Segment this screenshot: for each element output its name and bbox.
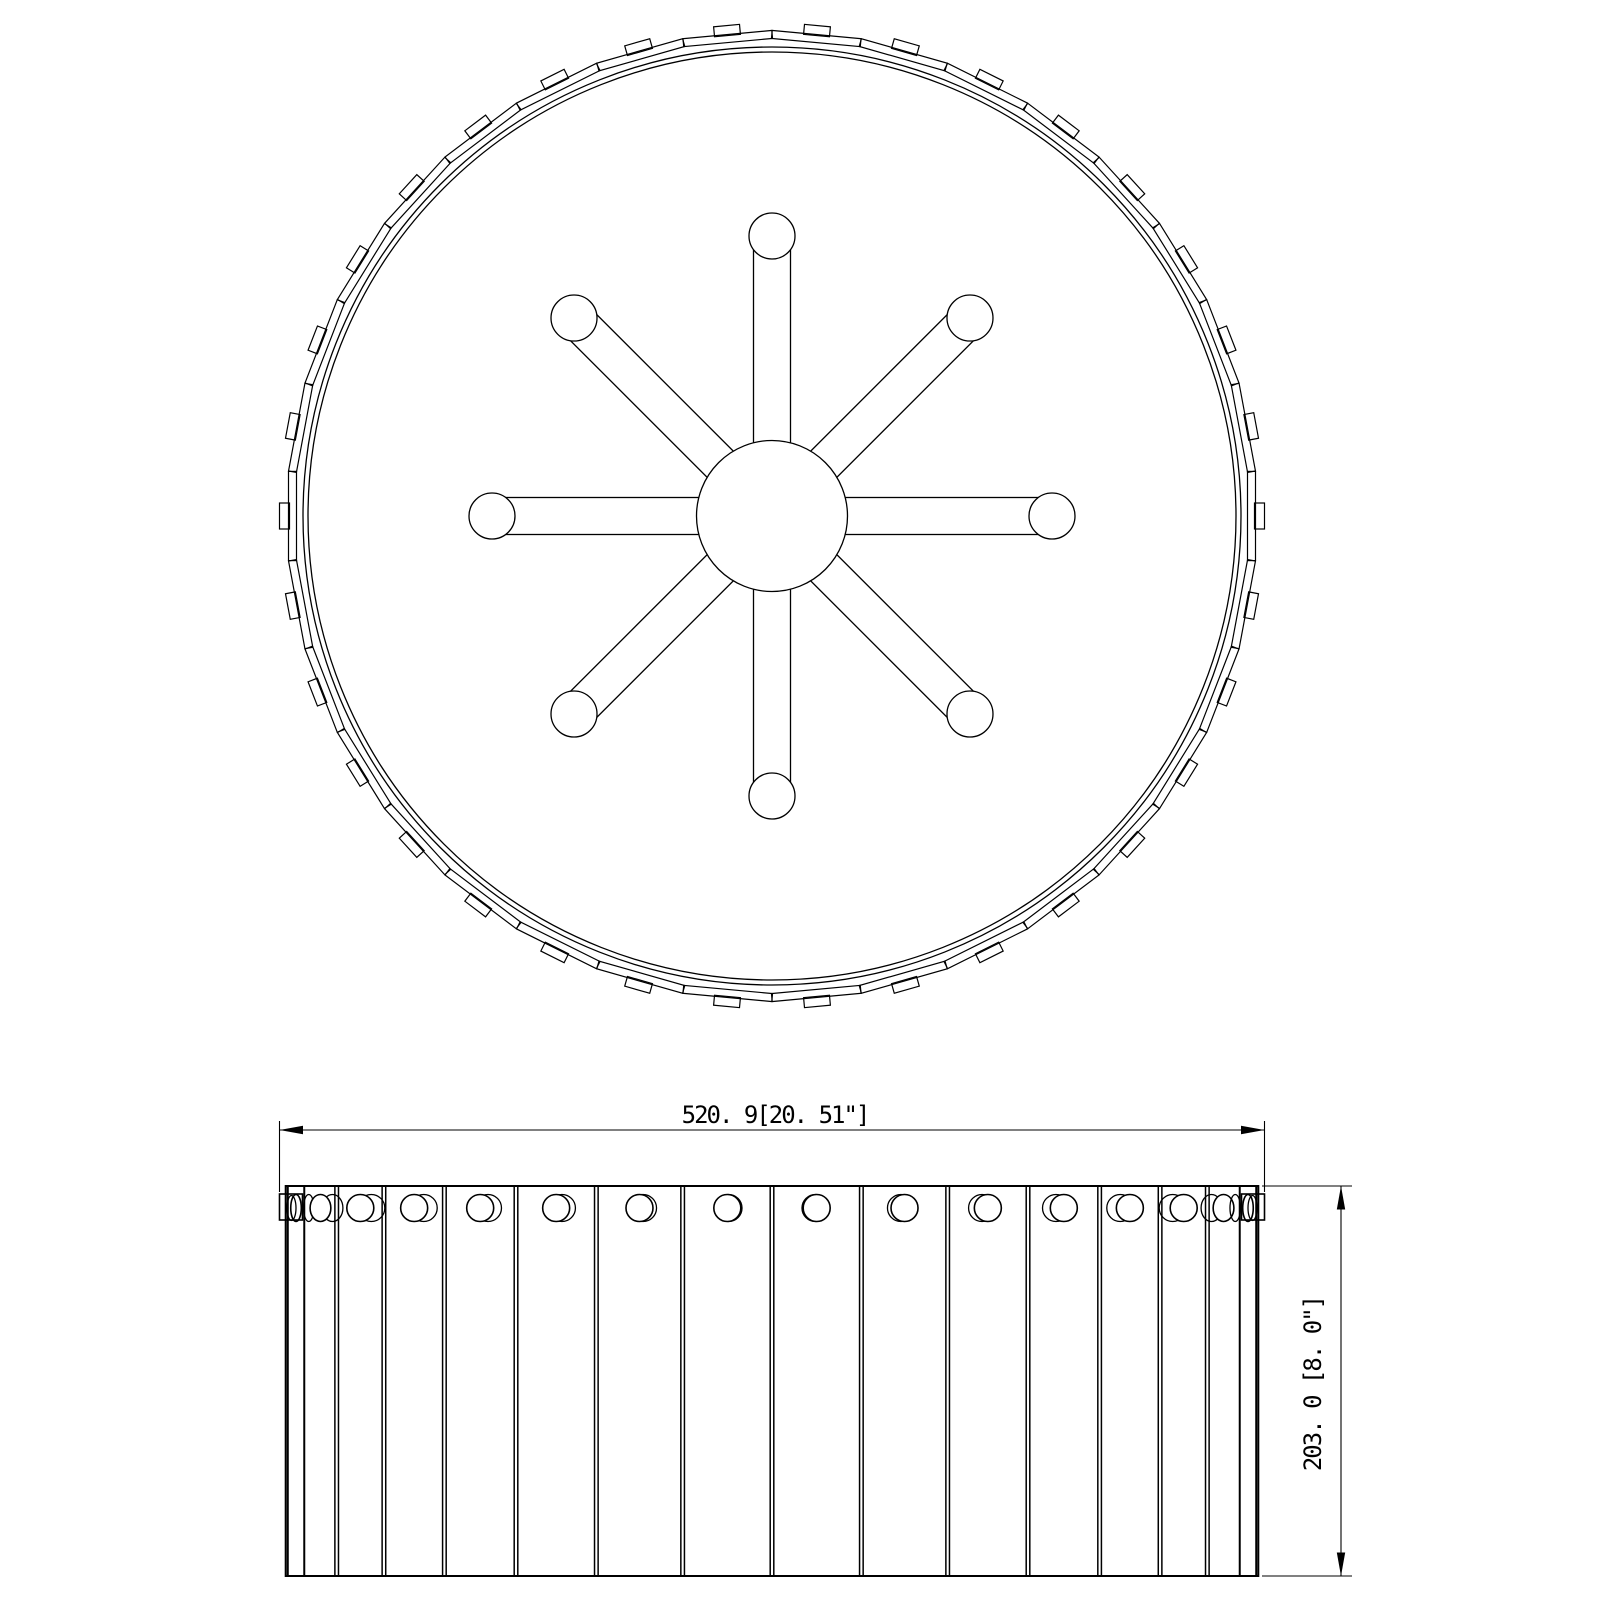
- clip-tab: [285, 413, 300, 440]
- glass-panel: [683, 30, 773, 46]
- panel-group: [297, 297, 345, 386]
- slat-finial: [543, 1195, 570, 1222]
- panel-group: [378, 803, 451, 880]
- panel-group: [280, 471, 297, 560]
- panel-group: [378, 151, 451, 228]
- panel-group: [771, 985, 861, 1010]
- glass-panel: [1231, 560, 1255, 649]
- slat-finial: [310, 1195, 331, 1222]
- clip-tab: [892, 977, 920, 994]
- dimension-arrow: [1337, 1553, 1345, 1577]
- slat-finial: [401, 1195, 428, 1222]
- slat-finial: [803, 1195, 830, 1222]
- lamp-holder-circle: [749, 773, 795, 819]
- lamp-holder-circle: [551, 691, 597, 737]
- lamp-holder-circle: [551, 295, 597, 341]
- clip-tab: [625, 39, 653, 56]
- clip-tab: [892, 39, 920, 56]
- panel-group: [280, 560, 313, 651]
- clip-tab: [285, 592, 300, 619]
- panel-group: [440, 869, 521, 936]
- dimension-arrow: [1241, 1126, 1265, 1134]
- glass-panel: [944, 922, 1027, 969]
- spoke-assembly: [469, 213, 1075, 819]
- panel-group: [440, 96, 521, 163]
- glass-panel: [289, 383, 313, 472]
- panel-group: [280, 382, 313, 473]
- glass-panel: [944, 63, 1027, 110]
- dimension-annotations: 520. 9[20. 51"] 203. 0 [8. 0"]: [280, 1101, 1353, 1576]
- slat-finial: [347, 1195, 374, 1222]
- dimension-arrow: [1337, 1186, 1345, 1210]
- panel-group: [944, 922, 1031, 977]
- panel-group: [1023, 869, 1104, 936]
- slat-finial: [1170, 1195, 1197, 1222]
- lamp-holder-circle: [947, 295, 993, 341]
- panel-group: [1023, 96, 1104, 163]
- slat-finial: [891, 1195, 918, 1222]
- panel-group: [682, 985, 772, 1010]
- panel-group: [1199, 297, 1247, 386]
- clip-tab: [625, 977, 653, 994]
- glass-panel: [1093, 803, 1159, 874]
- slat-finial: [1050, 1195, 1077, 1222]
- lamp-holder-circle: [749, 213, 795, 259]
- panel-group: [513, 55, 600, 110]
- slat-finial: [626, 1195, 653, 1222]
- slat-finial: [974, 1195, 1001, 1222]
- dimension-arrow: [280, 1126, 304, 1134]
- glass-panel: [385, 803, 451, 874]
- glass-panel: [1231, 383, 1255, 472]
- panel-group: [1199, 646, 1247, 735]
- glass-panel: [517, 63, 600, 110]
- clip-tab: [1244, 592, 1259, 619]
- clip-tab: [1244, 413, 1259, 440]
- panel-group: [771, 21, 861, 46]
- panel-group: [513, 922, 600, 977]
- panel-group: [1093, 151, 1166, 228]
- glass-panel: [385, 157, 451, 228]
- panel-group: [594, 30, 684, 71]
- glass-panel: [771, 985, 861, 1001]
- slat-finial: [714, 1195, 741, 1222]
- panel-group: [859, 30, 949, 71]
- panel-group: [1231, 560, 1264, 651]
- glass-panel: [289, 560, 313, 649]
- shade-body-outline: [286, 1186, 1259, 1576]
- panel-group: [859, 961, 949, 1002]
- slat-finial: [1213, 1195, 1234, 1222]
- center-hub: [697, 441, 848, 592]
- top-view-plan: [280, 21, 1265, 1010]
- glass-panel: [771, 30, 861, 46]
- fixture-technical-drawing: 520. 9[20. 51"] 203. 0 [8. 0"]: [0, 0, 1600, 1600]
- height-dimension-label: 203. 0 [8. 0"]: [1299, 1297, 1327, 1471]
- slat-finial: [467, 1195, 494, 1222]
- panel-group: [1231, 382, 1264, 473]
- width-dimension-label: 520. 9[20. 51"]: [682, 1101, 869, 1129]
- lamp-holder-circle: [947, 691, 993, 737]
- panel-group: [1093, 803, 1166, 880]
- glass-panel: [683, 985, 773, 1001]
- panel-group: [682, 21, 772, 46]
- lamp-holder-circle: [469, 493, 515, 539]
- glass-panel: [517, 922, 600, 969]
- glass-panel: [1093, 157, 1159, 228]
- panel-group: [944, 55, 1031, 110]
- front-view-elevation: [280, 1186, 1265, 1576]
- lamp-holder-circle: [1029, 493, 1075, 539]
- panel-group: [1248, 471, 1265, 560]
- panel-group: [594, 961, 684, 1002]
- panel-group: [297, 646, 345, 735]
- slat-finial: [1116, 1195, 1143, 1222]
- drawing-sheet: 520. 9[20. 51"] 203. 0 [8. 0"]: [0, 0, 1600, 1600]
